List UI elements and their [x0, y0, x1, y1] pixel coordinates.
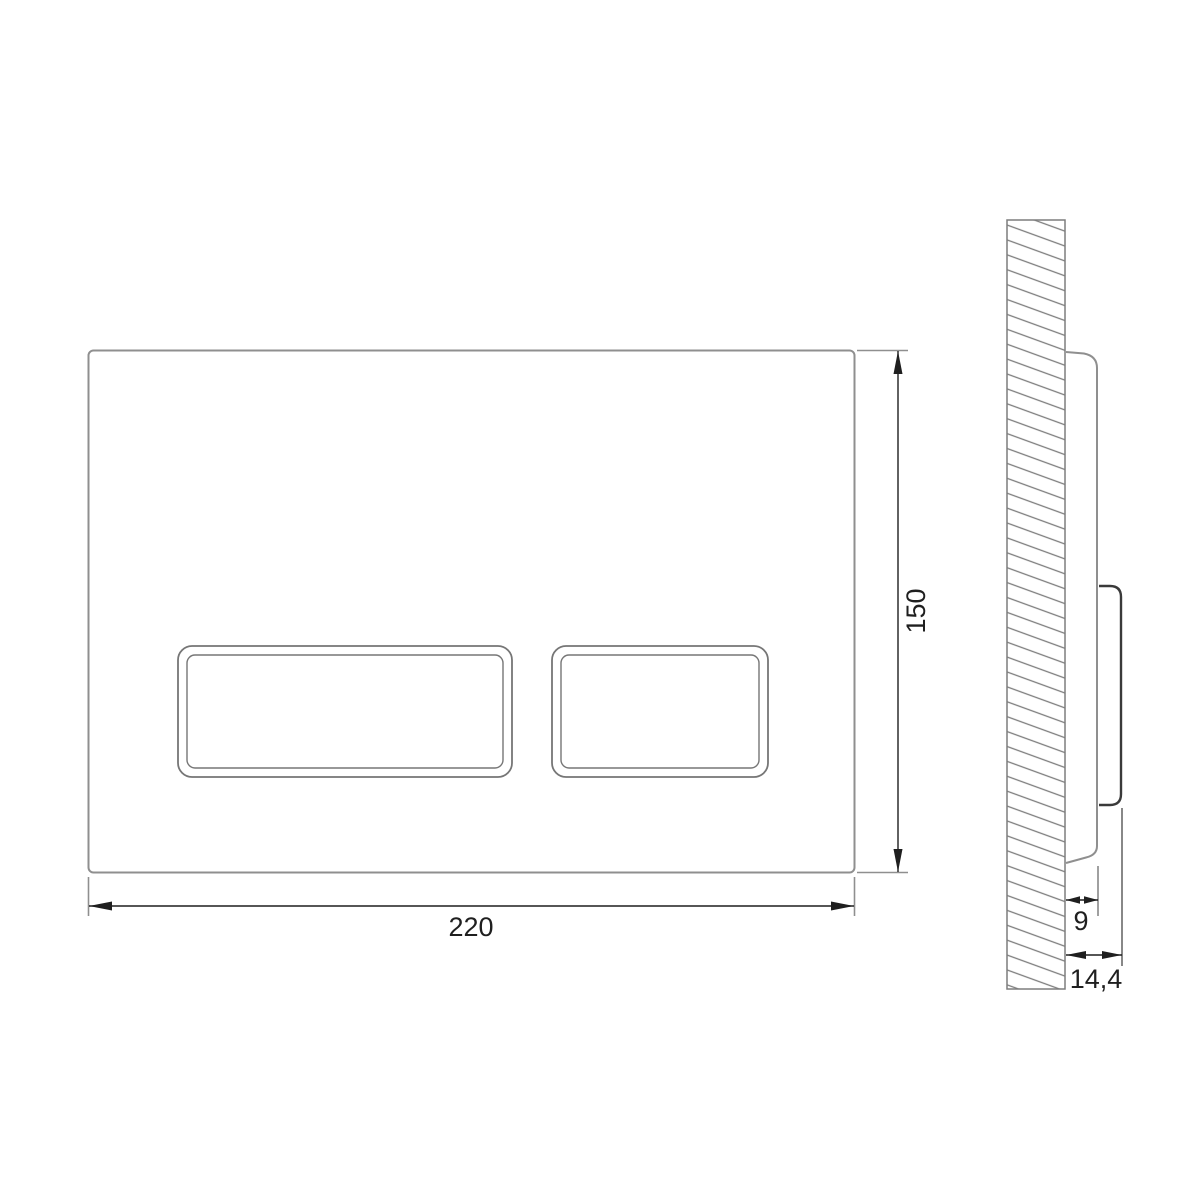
dimension-plate-depth: 9 [1066, 866, 1098, 936]
dimension-width-label: 220 [448, 912, 493, 942]
dimension-width: 220 [89, 877, 855, 942]
flush-plate-outline [89, 351, 855, 873]
arrowhead-bottom-icon [894, 849, 903, 872]
button-side-profile [1099, 586, 1121, 805]
dimension-overall-depth-label: 14,4 [1070, 964, 1123, 994]
arrowhead-left-icon [89, 902, 112, 911]
arrowhead-left-icon [1066, 896, 1080, 904]
arrowhead-top-icon [894, 351, 903, 374]
dimension-height: 150 [857, 351, 931, 873]
technical-drawing-page: 220 150 9 [0, 0, 1200, 1200]
front-view [89, 351, 855, 873]
arrowhead-right-icon [1084, 896, 1098, 904]
plate-side-profile [1066, 352, 1097, 863]
arrowhead-left-icon [1066, 951, 1086, 959]
dimension-plate-depth-label: 9 [1073, 906, 1088, 936]
flush-plate-technical-drawing: 220 150 9 [0, 0, 1200, 1200]
dimension-height-label: 150 [901, 588, 931, 633]
side-view [1007, 220, 1121, 989]
arrowhead-right-icon [1102, 951, 1122, 959]
wall-section-hatch [1007, 220, 1065, 989]
arrowhead-right-icon [831, 902, 854, 911]
